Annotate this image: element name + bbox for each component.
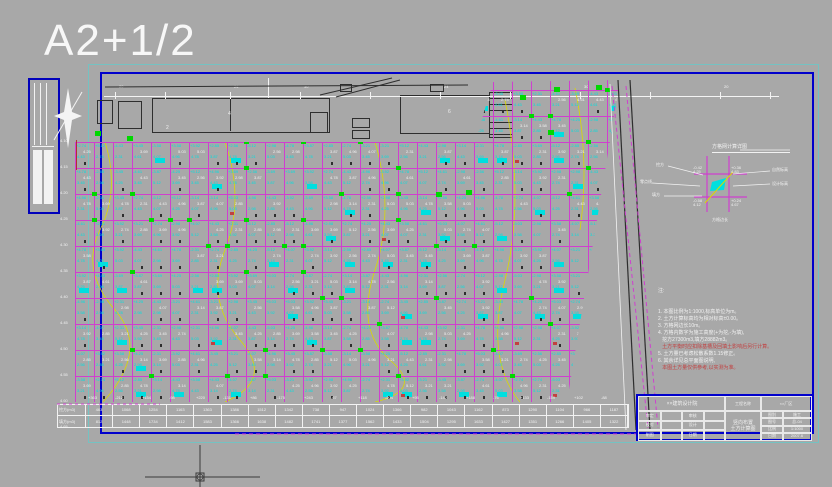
cell-volume: 3.14 bbox=[596, 150, 604, 154]
cad-canvas[interactable]: A2+1/2 4 2 6 202430243020 +3.873.69-3.58… bbox=[0, 0, 832, 487]
cell-elevation: -3.92 bbox=[285, 196, 294, 200]
cell-elevation: 5.12 bbox=[571, 103, 579, 107]
tree-marker bbox=[586, 140, 591, 144]
grid-row-label: 4.55 bbox=[60, 373, 68, 377]
cell-volume: 3.92 bbox=[83, 332, 91, 336]
table-value: 1405 bbox=[574, 416, 601, 427]
table-value: 873 bbox=[493, 405, 520, 415]
cell-volume: 3.14 bbox=[349, 280, 357, 284]
tree-marker bbox=[263, 348, 268, 352]
cell-elevation: +4.07 bbox=[285, 248, 295, 252]
cell-elevation: 4.96 bbox=[400, 207, 408, 211]
cell-volume: 4.96 bbox=[178, 202, 186, 206]
cell-elevation: +5.03 bbox=[228, 196, 238, 200]
cell-volume: 3.69 bbox=[216, 280, 224, 284]
cell-elevation: +3.45 bbox=[323, 300, 333, 304]
cell-volume: 2.98 bbox=[273, 228, 281, 232]
cell-volume: 2.31 bbox=[292, 228, 300, 232]
cell-elevation: 4.78 bbox=[495, 207, 503, 211]
cell-volume: 2.85 bbox=[254, 228, 262, 232]
tree-marker bbox=[554, 87, 560, 92]
cell-volume: 4.07 bbox=[368, 150, 376, 154]
cell-elevation: -4.07 bbox=[494, 352, 503, 356]
cell-elevation: +4.78 bbox=[494, 144, 504, 148]
cell-elevation: 4.25 bbox=[457, 311, 465, 315]
building bbox=[352, 130, 370, 139]
left-legend-box bbox=[28, 78, 60, 214]
cell-elevation: -2.31 bbox=[152, 326, 161, 330]
tree-marker bbox=[130, 192, 135, 196]
cell-elevation: 3.69 bbox=[77, 103, 85, 107]
cell-elevation: 4.96 bbox=[305, 207, 313, 211]
cell-elevation: +3.92 bbox=[437, 326, 447, 330]
table-value: 1187 bbox=[601, 405, 628, 415]
cell-elevation: 3.21 bbox=[324, 155, 332, 159]
cell-volume: 2.98 bbox=[330, 202, 338, 206]
cell-elevation: +5.03 bbox=[266, 378, 276, 382]
cell-elevation: 4.96 bbox=[77, 129, 85, 133]
cell-volume: 4.78 bbox=[83, 202, 91, 206]
red-marker bbox=[515, 160, 519, 163]
cell-volume: 2.74 bbox=[520, 358, 528, 362]
cell-volume: 4.78 bbox=[387, 384, 395, 388]
cell-elevation: 3.69 bbox=[457, 337, 465, 341]
cell-volume: 2.74 bbox=[273, 254, 281, 258]
cell-elevation: 2.31 bbox=[533, 337, 541, 341]
cell-elevation: +2.56 bbox=[361, 196, 371, 200]
cell-volume: 4.25 bbox=[558, 384, 566, 388]
table-value: 1290 bbox=[520, 405, 547, 415]
cell-elevation: +3.14 bbox=[456, 144, 466, 148]
cell-elevation: +2.85 bbox=[209, 144, 219, 148]
column-net-value: -159 bbox=[547, 396, 555, 400]
cell-elevation: 5.03 bbox=[229, 207, 237, 211]
table-value: 1741 bbox=[303, 416, 330, 427]
cell-elevation: +4.07 bbox=[551, 326, 561, 330]
tree-marker bbox=[225, 244, 230, 248]
cell-elevation: 3.69 bbox=[134, 233, 142, 237]
cell-volume: 3.92 bbox=[482, 280, 490, 284]
grid-row-label: 4.45 bbox=[60, 321, 68, 325]
cell-volume: 4.78 bbox=[330, 176, 338, 180]
table-value: 1024 bbox=[357, 405, 384, 415]
cell-elevation: +2.56 bbox=[437, 274, 447, 278]
cell-elevation: +3.45 bbox=[285, 352, 295, 356]
cell-volume: 2.31 bbox=[425, 358, 433, 362]
cell-elevation: 4.07 bbox=[476, 285, 484, 289]
cell-elevation: 5.12 bbox=[267, 233, 275, 237]
cell-elevation: -4.43 bbox=[380, 274, 389, 278]
cell-elevation: +3.45 bbox=[247, 300, 257, 304]
cell-volume: 2.56 bbox=[273, 150, 281, 154]
water-patch bbox=[174, 392, 184, 397]
cell-volume: 2.85 bbox=[501, 176, 509, 180]
cell-volume: 4.96 bbox=[349, 150, 357, 154]
cell-elevation: 5.12 bbox=[476, 233, 484, 237]
cell-elevation: -3.14 bbox=[323, 326, 332, 330]
tree-marker bbox=[127, 136, 133, 141]
cell-elevation: 2.98 bbox=[96, 311, 104, 315]
cell-elevation: -3.14 bbox=[342, 352, 351, 356]
cell-elevation: -3.45 bbox=[494, 92, 503, 96]
cell-volume: 4.43 bbox=[83, 176, 91, 180]
cell-volume: 3.87 bbox=[197, 254, 205, 258]
cell-elevation: -2.98 bbox=[171, 222, 180, 226]
note-line: 挖方27300m3,填方28882m3。 bbox=[658, 337, 798, 344]
cell-elevation: +2.31 bbox=[95, 222, 105, 226]
cell-elevation: -2.98 bbox=[456, 170, 465, 174]
cell-elevation: +2.98 bbox=[380, 196, 390, 200]
cell-elevation: 4.07 bbox=[248, 233, 256, 237]
cell-elevation: 3.21 bbox=[552, 103, 560, 107]
cell-elevation: -2.31 bbox=[190, 248, 199, 252]
cell-elevation: 4.07 bbox=[172, 311, 180, 315]
cell-elevation: 2.31 bbox=[229, 337, 237, 341]
cell-elevation: -5.03 bbox=[266, 326, 275, 330]
cell-volume: 4.78 bbox=[292, 358, 300, 362]
cell-elevation: 4.78 bbox=[77, 337, 85, 341]
cell-elevation: -2.31 bbox=[95, 196, 104, 200]
cell-volume: 4.43 bbox=[406, 358, 414, 362]
cell-volume: 3.87 bbox=[330, 306, 338, 310]
cell-elevation: 2.31 bbox=[571, 207, 579, 211]
cell-elevation: +3.87 bbox=[133, 274, 143, 278]
cell-elevation: +2.74 bbox=[323, 170, 333, 174]
cell-volume: 2.85 bbox=[178, 358, 186, 362]
cell-elevation: +3.58 bbox=[190, 378, 200, 382]
cell-elevation: +3.21 bbox=[570, 248, 580, 252]
dimension-tick bbox=[115, 92, 116, 99]
column-net-value: +133 bbox=[520, 396, 529, 400]
cell-elevation: +4.25 bbox=[171, 274, 181, 278]
cell-elevation: 2.85 bbox=[533, 155, 541, 159]
cell-elevation: +2.85 bbox=[228, 248, 238, 252]
cell-elevation: +5.12 bbox=[418, 170, 428, 174]
cell-elevation: 4.07 bbox=[514, 311, 522, 315]
cell-elevation: 4.78 bbox=[77, 259, 85, 263]
cell-elevation: -4.78 bbox=[494, 196, 503, 200]
cell-elevation: 4.96 bbox=[381, 181, 389, 185]
table-value: 1068 bbox=[113, 405, 140, 415]
cell-elevation: 3.14 bbox=[400, 285, 408, 289]
cell-elevation: 3.45 bbox=[134, 181, 142, 185]
tree-marker bbox=[206, 244, 211, 248]
cell-elevation: -2.56 bbox=[342, 248, 351, 252]
cell-elevation: 5.12 bbox=[324, 389, 332, 393]
tree-marker bbox=[95, 131, 101, 136]
cell-elevation: 5.03 bbox=[191, 337, 199, 341]
cell-elevation: +2.56 bbox=[247, 170, 257, 174]
cell-elevation: 4.25 bbox=[438, 259, 446, 263]
tree-marker bbox=[548, 114, 553, 118]
cell-elevation: -5.12 bbox=[418, 248, 427, 252]
tree-marker bbox=[301, 244, 306, 248]
red-marker bbox=[401, 394, 405, 397]
cell-elevation: -3.45 bbox=[114, 170, 123, 174]
table-value: 1342 bbox=[276, 405, 303, 415]
cell-volume: 4.25 bbox=[140, 332, 148, 336]
tree-marker bbox=[130, 348, 135, 352]
cell-elevation: -2.74 bbox=[361, 378, 370, 382]
cell-volume: 3.92 bbox=[539, 176, 547, 180]
cell-elevation: +5.12 bbox=[190, 170, 200, 174]
tree-marker bbox=[92, 218, 97, 222]
cell-elevation: 4.96 bbox=[172, 155, 180, 159]
table-value: 1162 bbox=[465, 405, 492, 415]
cell-elevation: 3.21 bbox=[362, 233, 370, 237]
cell-elevation: 3.45 bbox=[191, 181, 199, 185]
cell-elevation: +4.25 bbox=[380, 352, 390, 356]
cell-elevation: -3.87 bbox=[304, 274, 313, 278]
cell-elevation: -3.21 bbox=[361, 144, 370, 148]
cell-elevation: 3.87 bbox=[343, 389, 351, 393]
tree-marker bbox=[510, 374, 515, 378]
cell-volume: 2.56 bbox=[558, 98, 566, 102]
cell-elevation: 2.31 bbox=[286, 259, 294, 263]
table-value: 738 bbox=[303, 405, 330, 415]
cell-volume: 3.69 bbox=[102, 202, 110, 206]
cell-volume: 4.25 bbox=[406, 228, 414, 232]
cell-volume: 4.96 bbox=[501, 332, 509, 336]
cell-elevation: 3.69 bbox=[381, 311, 389, 315]
tree-marker bbox=[491, 348, 496, 352]
cell-elevation: 2.56 bbox=[438, 311, 446, 315]
tree-marker bbox=[301, 218, 306, 222]
tree-marker bbox=[244, 270, 249, 274]
cell-elevation: +2.74 bbox=[513, 378, 523, 382]
cell-elevation: +4.78 bbox=[76, 170, 86, 174]
grid-row-label: 4.10 bbox=[60, 139, 68, 143]
column-net-value: +243 bbox=[304, 396, 313, 400]
cell-elevation: +2.85 bbox=[551, 352, 561, 356]
tree-marker bbox=[529, 296, 534, 300]
cell-elevation: 4.61 bbox=[495, 103, 503, 107]
cell-elevation: 5.03 bbox=[514, 181, 522, 185]
cell-elevation: -4.07 bbox=[76, 352, 85, 356]
cell-elevation: 4.96 bbox=[343, 363, 351, 367]
tree-marker bbox=[466, 190, 472, 195]
cell-elevation: 2.56 bbox=[400, 155, 408, 159]
cell-elevation: 3.69 bbox=[381, 155, 389, 159]
cell-volume: 4.78 bbox=[121, 202, 129, 206]
building bbox=[152, 98, 330, 133]
cell-elevation: 3.14 bbox=[267, 337, 275, 341]
cell-elevation: 2.74 bbox=[571, 155, 579, 159]
cell-elevation: +4.96 bbox=[76, 196, 86, 200]
cell-elevation: 2.85 bbox=[533, 129, 541, 133]
cell-elevation: 3.58 bbox=[495, 337, 503, 341]
detail-label: 填方 bbox=[652, 193, 660, 197]
cell-elevation: 2.85 bbox=[590, 129, 598, 133]
cell-elevation: -4.25 bbox=[171, 170, 180, 174]
cell-elevation: +2.98 bbox=[323, 378, 333, 382]
cell-elevation: +4.43 bbox=[418, 326, 428, 330]
column-net-value: +86 bbox=[250, 396, 257, 400]
cell-volume: 3.58 bbox=[83, 254, 91, 258]
red-marker bbox=[230, 212, 234, 215]
water-patch bbox=[402, 340, 412, 345]
cell-elevation: 2.31 bbox=[400, 259, 408, 263]
table-value: 1433 bbox=[384, 416, 411, 427]
tree-marker bbox=[358, 348, 363, 352]
cell-volume: 3.87 bbox=[444, 150, 452, 154]
dimension-label: 30 bbox=[304, 85, 308, 89]
table-value: 1254 bbox=[140, 405, 167, 415]
water-patch bbox=[117, 340, 127, 345]
cell-elevation: -3.87 bbox=[456, 378, 465, 382]
cell-volume: 5.12 bbox=[406, 384, 414, 388]
cell-elevation: 2.85 bbox=[96, 363, 104, 367]
cell-elevation: 4.25 bbox=[210, 363, 218, 367]
cell-elevation: 4.96 bbox=[210, 207, 218, 211]
legend-columns bbox=[34, 83, 52, 145]
cell-elevation: 4.96 bbox=[457, 207, 465, 211]
tree-marker bbox=[149, 374, 154, 378]
cell-elevation: -4.96 bbox=[304, 326, 313, 330]
cell-volume: 3.92 bbox=[102, 228, 110, 232]
cell-elevation: -3.21 bbox=[380, 144, 389, 148]
cell-elevation: +4.96 bbox=[342, 378, 352, 382]
cell-elevation: +4.25 bbox=[361, 326, 371, 330]
cell-volume: 3.14 bbox=[140, 358, 148, 362]
cell-elevation: +4.25 bbox=[133, 300, 143, 304]
cell-elevation: 3.45 bbox=[362, 155, 370, 159]
cell-volume: 4.96 bbox=[368, 358, 376, 362]
detail-label: 零点线 bbox=[640, 180, 652, 184]
tree-marker bbox=[596, 85, 602, 90]
cell-elevation: +4.43 bbox=[209, 222, 219, 226]
cell-elevation: 5.03 bbox=[476, 207, 484, 211]
cell-elevation: +5.12 bbox=[475, 274, 485, 278]
cell-elevation: 3.92 bbox=[172, 233, 180, 237]
cell-elevation: -3.14 bbox=[418, 196, 427, 200]
cell-elevation: 3.69 bbox=[419, 285, 427, 289]
cell-elevation: +2.85 bbox=[361, 248, 371, 252]
cell-elevation: -4.43 bbox=[589, 92, 598, 96]
water-patch bbox=[573, 184, 583, 189]
cell-volume: 3.69 bbox=[387, 228, 395, 232]
cell-elevation: -3.45 bbox=[494, 300, 503, 304]
tree-marker bbox=[396, 192, 401, 196]
column-net-value: -98 bbox=[169, 396, 175, 400]
cell-elevation: 4.61 bbox=[305, 233, 313, 237]
cell-elevation: +2.74 bbox=[152, 222, 162, 226]
cell-elevation: 4.96 bbox=[153, 233, 161, 237]
cell-elevation: 4.43 bbox=[77, 155, 85, 159]
cell-elevation: -4.43 bbox=[133, 248, 142, 252]
cell-elevation: 3.69 bbox=[514, 285, 522, 289]
cell-elevation: +3.21 bbox=[228, 352, 238, 356]
sign-cell: 日期 bbox=[681, 429, 705, 441]
cell-volume: 4.61 bbox=[463, 176, 471, 180]
cell-elevation: -4.07 bbox=[532, 196, 541, 200]
cell-volume: 3.21 bbox=[387, 358, 395, 362]
cell-elevation: -2.85 bbox=[418, 352, 427, 356]
cell-elevation: -4.43 bbox=[152, 300, 161, 304]
cell-elevation: 4.25 bbox=[381, 207, 389, 211]
cell-elevation: 5.03 bbox=[229, 285, 237, 289]
cell-volume: 3.58 bbox=[444, 202, 452, 206]
table-value: 1366 bbox=[222, 416, 249, 427]
tree-marker bbox=[339, 192, 344, 196]
cell-elevation: 3.92 bbox=[134, 337, 142, 341]
cell-volume: 3.58 bbox=[539, 124, 547, 128]
cell-elevation: 5.12 bbox=[153, 181, 161, 185]
cell-elevation: -2.98 bbox=[437, 144, 446, 148]
table-value: 1562 bbox=[357, 416, 384, 427]
cell-volume: 3.45 bbox=[558, 228, 566, 232]
cell-elevation: 3.92 bbox=[210, 311, 218, 315]
cell-elevation: 4.61 bbox=[419, 363, 427, 367]
cell-elevation: +2.74 bbox=[532, 378, 542, 382]
dimension-tick bbox=[165, 92, 166, 99]
cell-elevation: 3.14 bbox=[267, 285, 275, 289]
cell-volume: 2.31 bbox=[558, 332, 566, 336]
cell-elevation: +4.25 bbox=[532, 300, 542, 304]
cell-elevation: +2.74 bbox=[133, 196, 143, 200]
cell-elevation: -3.69 bbox=[114, 274, 123, 278]
cell-elevation: +4.25 bbox=[247, 248, 257, 252]
cell-volume: 5.03 bbox=[406, 202, 414, 206]
dimension-label: 20 bbox=[119, 85, 123, 89]
cell-elevation: +2.31 bbox=[190, 326, 200, 330]
cell-volume: 4.25 bbox=[349, 384, 357, 388]
cell-volume: 5.03 bbox=[178, 150, 186, 154]
cell-elevation: 4.96 bbox=[96, 389, 104, 393]
table-value: 1351 bbox=[520, 416, 547, 427]
cell-volume: 2.74 bbox=[501, 98, 509, 102]
cell-elevation: -4.96 bbox=[399, 274, 408, 278]
cell-volume: 3.45 bbox=[178, 176, 186, 180]
crosshair-cursor bbox=[145, 445, 260, 487]
tree-marker bbox=[520, 95, 526, 100]
dimension-tick bbox=[650, 92, 651, 99]
cell-elevation: 4.07 bbox=[590, 181, 598, 185]
cell-elevation: 2.56 bbox=[419, 389, 427, 393]
cell-elevation: 2.74 bbox=[552, 181, 560, 185]
cell-elevation: +4.61 bbox=[570, 196, 580, 200]
cell-volume: 3.69 bbox=[159, 358, 167, 362]
table-value: 1163 bbox=[167, 405, 194, 415]
cell-elevation: -4.96 bbox=[304, 222, 313, 226]
cell-elevation: 3.87 bbox=[514, 129, 522, 133]
cell-elevation: -4.96 bbox=[361, 170, 370, 174]
cell-elevation: -4.61 bbox=[494, 118, 503, 122]
cell-elevation: 3.45 bbox=[77, 181, 85, 185]
note-line: 4. 方格内数字为施工高度(+为挖,-为填), bbox=[658, 330, 798, 337]
detail-corner-value: -0.42 4.25 bbox=[693, 166, 702, 174]
cell-volume: 4.07 bbox=[159, 306, 167, 310]
cell-elevation: -4.07 bbox=[95, 326, 104, 330]
cell-elevation: 3.21 bbox=[533, 285, 541, 289]
cell-elevation: 5.12 bbox=[324, 259, 332, 263]
building bbox=[310, 112, 328, 133]
cell-elevation: +3.92 bbox=[228, 274, 238, 278]
cell-elevation: -5.12 bbox=[551, 144, 560, 148]
cell-elevation: 3.69 bbox=[172, 181, 180, 185]
cell-volume: 5.03 bbox=[444, 228, 452, 232]
cell-elevation: 3.92 bbox=[476, 363, 484, 367]
table-value: 1482 bbox=[276, 416, 303, 427]
red-marker bbox=[211, 342, 215, 345]
dimension-tick bbox=[300, 92, 301, 99]
cell-elevation: -5.03 bbox=[551, 378, 560, 382]
cell-elevation: 3.21 bbox=[77, 389, 85, 393]
cell-elevation: 3.87 bbox=[267, 181, 275, 185]
cell-volume: 4.07 bbox=[387, 332, 395, 336]
cell-elevation: 5.12 bbox=[514, 337, 522, 341]
cell-elevation: -5.12 bbox=[285, 222, 294, 226]
